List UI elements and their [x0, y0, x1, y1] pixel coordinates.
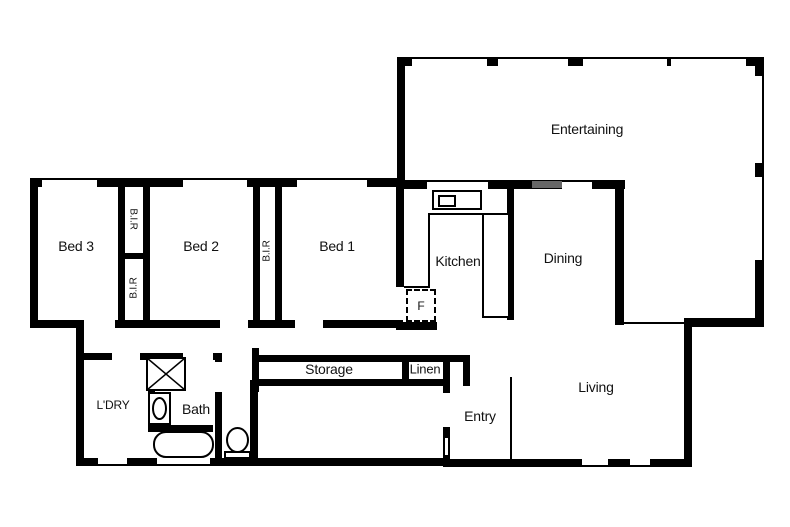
room-label-entertaining: Entertaining	[551, 121, 623, 137]
wall-bir2-right	[275, 187, 282, 320]
wall-bottom-right	[443, 459, 692, 467]
counter-edge-bottom	[404, 286, 430, 288]
window-entry	[443, 438, 450, 455]
wall-kitchen-bottom-left	[396, 322, 437, 330]
counter-edge-left	[428, 213, 430, 288]
wall-bedroom-bottom-b	[248, 320, 295, 328]
wall-wc-left-stub	[215, 353, 222, 362]
beam-over-opening	[532, 181, 562, 188]
window-bed3	[42, 178, 97, 187]
wall-bir2-left	[253, 187, 260, 320]
wall-bed1-right	[396, 186, 404, 287]
window-living-2	[630, 459, 650, 467]
room-label-linen: Linen	[410, 362, 441, 377]
room-label-bir-2: B.I.R	[262, 240, 273, 261]
kitchen-peninsula	[482, 213, 510, 318]
toilet-icon	[222, 426, 252, 460]
window-bed2	[183, 178, 247, 187]
window-entertaining-right-2	[755, 177, 764, 260]
room-label-dining: Dining	[544, 250, 583, 266]
wall-storage-right	[463, 355, 470, 386]
wall-storage-left	[252, 348, 259, 392]
room-label-bir-top: B.I.R	[128, 208, 139, 229]
entry-living-divider	[510, 377, 512, 459]
wall-bedroom-bottom-c	[323, 320, 403, 328]
bathtub	[153, 431, 214, 458]
wall-living-right	[684, 318, 692, 467]
wall-bedroom-bottom-a	[115, 320, 220, 328]
window-entertaining-1	[412, 57, 487, 66]
window-entertaining-2	[498, 57, 568, 66]
wall-storage-linen-divider	[402, 355, 409, 386]
room-label-laundry: L'DRY	[96, 398, 129, 412]
wall-bath-top-a	[84, 353, 112, 360]
fridge-label: F	[417, 299, 424, 313]
window-bath	[157, 458, 210, 466]
wall-linen-right	[443, 355, 450, 393]
window-entertaining-right-1	[755, 76, 764, 163]
wall-dining-right	[615, 180, 624, 325]
window-entertaining-3	[583, 57, 667, 66]
window-living-1	[582, 459, 608, 467]
room-label-living: Living	[578, 379, 613, 395]
room-label-kitchen: Kitchen	[435, 253, 480, 269]
window-entertaining-4	[671, 57, 746, 66]
shower-icon	[146, 357, 186, 391]
room-label-storage: Storage	[305, 361, 353, 377]
wall-bir1-divider	[118, 253, 150, 259]
wall-entertaining-left	[397, 57, 405, 186]
wall-wc-left	[215, 392, 222, 466]
wall-entertaining-bottom	[684, 318, 764, 327]
room-label-bath: Bath	[182, 401, 210, 417]
opening-dining	[562, 180, 592, 189]
opening-kitchen-servery	[427, 180, 488, 189]
wall-laundry-left	[76, 320, 84, 466]
room-label-bir-bottom: B.I.R	[129, 277, 140, 298]
wall-left	[30, 178, 38, 328]
room-label-bed1: Bed 1	[319, 238, 355, 254]
kitchen-sink	[438, 195, 456, 207]
wall-bottom-mid	[250, 458, 450, 466]
window-bed1	[297, 178, 367, 187]
counter-edge-top	[428, 213, 482, 215]
room-label-bed3: Bed 3	[58, 238, 94, 254]
vanity-sink-icon	[148, 392, 171, 425]
window-laundry	[98, 458, 127, 466]
wall-bed3-bottom	[30, 320, 82, 328]
floor-plan: Entertaining Bed 3 Bed 2 Bed 1 B.I.R B.I…	[0, 0, 790, 527]
wall-storage-bottom	[252, 379, 450, 386]
opening-line-dining-living	[624, 322, 684, 324]
room-label-entry: Entry	[464, 408, 496, 424]
room-label-bed2: Bed 2	[183, 238, 219, 254]
